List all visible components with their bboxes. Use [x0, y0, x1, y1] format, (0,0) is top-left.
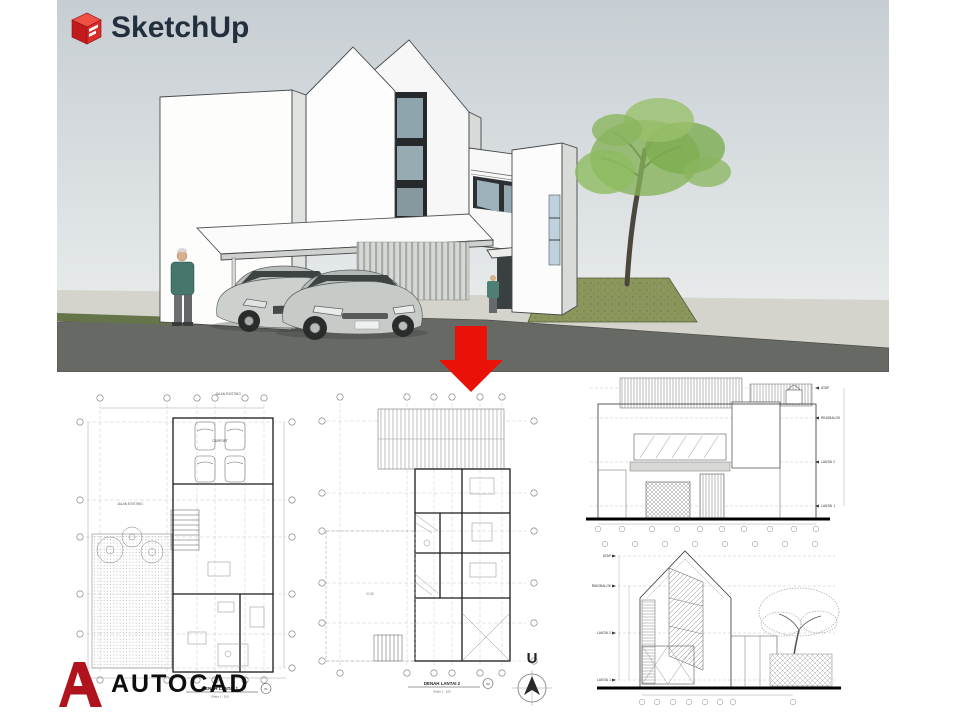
plan2-sheet-no: 02	[486, 682, 490, 686]
plan2-scale: Skala 1 : 100	[433, 690, 451, 694]
render-scene	[57, 0, 889, 372]
level-labels: ATAP RINGBALOK LANTAI 2 LANTAI 1	[815, 386, 841, 508]
autocad-wordmark: AUTOCAD	[111, 661, 250, 707]
sketchup-logo: SketchUp	[68, 10, 249, 46]
compass-north-label: U	[527, 650, 538, 667]
autocad-a-icon	[56, 660, 104, 708]
street-label-left: JALAN EXISTING	[117, 502, 143, 506]
sketchup-cube-icon	[68, 10, 104, 46]
elevation-side: ATAP RINGBALOK LANTAI 2 LANTAI 1	[585, 538, 855, 713]
elevation-front: ATAP RINGBALOK LANTAI 2 LANTAI 1	[582, 374, 852, 532]
level-atap: ATAP	[821, 386, 830, 390]
level-labels: ATAP RINGBALOK LANTAI 2 LANTAI 1	[592, 554, 616, 682]
level-lantai2: LANTAI 2	[821, 460, 835, 464]
autocad-logo: AUTOCAD	[56, 660, 250, 708]
level-atap: ATAP	[603, 554, 612, 558]
plan1-sheet-no: 01	[264, 687, 268, 691]
level-ringbalok: RINGBALOK	[592, 584, 612, 588]
floor-plan-1: JALAN EXISTING JALAN EXISTING CARPORT DE…	[68, 382, 303, 702]
void-label: VOID	[366, 592, 375, 596]
down-arrow-icon	[439, 326, 503, 392]
street-label-top: JALAN EXISTING	[215, 392, 241, 396]
level-ringbalok: RINGBALOK	[821, 416, 841, 420]
carport-label: CARPORT	[212, 439, 228, 443]
plan2-caption: DENAH LANTAI 2 02 Skala 1 : 100	[408, 679, 493, 694]
plan-cars	[195, 422, 245, 482]
level-lantai1: LANTAI 1	[821, 504, 835, 508]
page: SketchUp	[0, 0, 960, 720]
sketchup-render	[57, 0, 889, 372]
level-lantai2: LANTAI 2	[597, 631, 611, 635]
sketchup-wordmark: SketchUp	[111, 10, 249, 46]
north-compass: U	[505, 648, 561, 708]
plan2-title: DENAH LANTAI 2	[424, 681, 461, 686]
level-lantai1: LANTAI 1	[597, 678, 611, 682]
